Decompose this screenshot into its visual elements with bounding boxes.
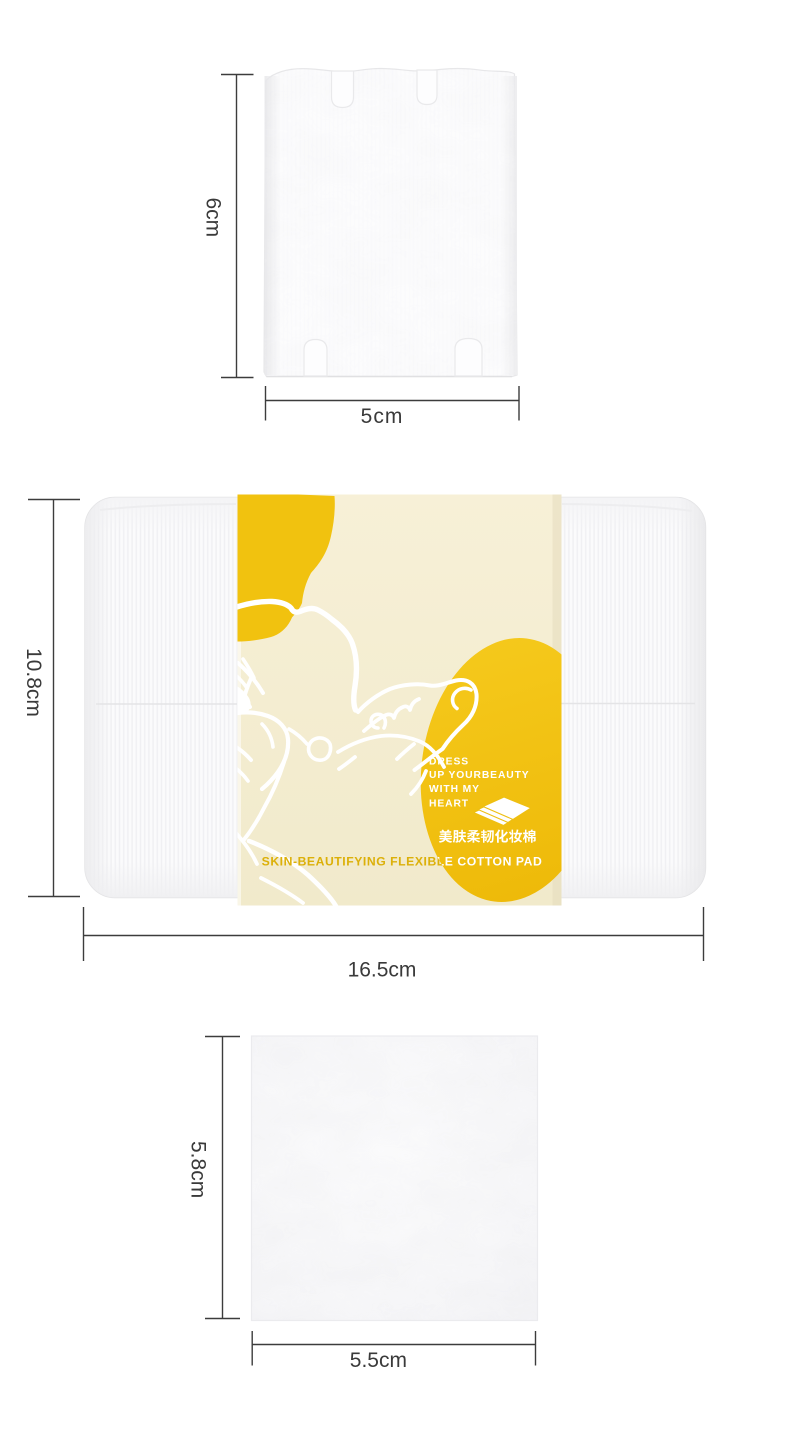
- svg-text:6cm: 6cm: [202, 198, 225, 238]
- svg-text:HEART: HEART: [429, 798, 469, 809]
- svg-text:DRESS: DRESS: [429, 757, 469, 768]
- svg-text:5.8cm: 5.8cm: [187, 1141, 210, 1198]
- svg-text:WITH MY: WITH MY: [429, 784, 480, 795]
- svg-text:UP YOURBEAUTY: UP YOURBEAUTY: [429, 770, 530, 781]
- svg-text:5cm: 5cm: [361, 405, 404, 428]
- svg-text:16.5cm: 16.5cm: [348, 959, 417, 982]
- svg-text:5.5cm: 5.5cm: [350, 1349, 407, 1372]
- svg-text:10.8cm: 10.8cm: [22, 648, 45, 717]
